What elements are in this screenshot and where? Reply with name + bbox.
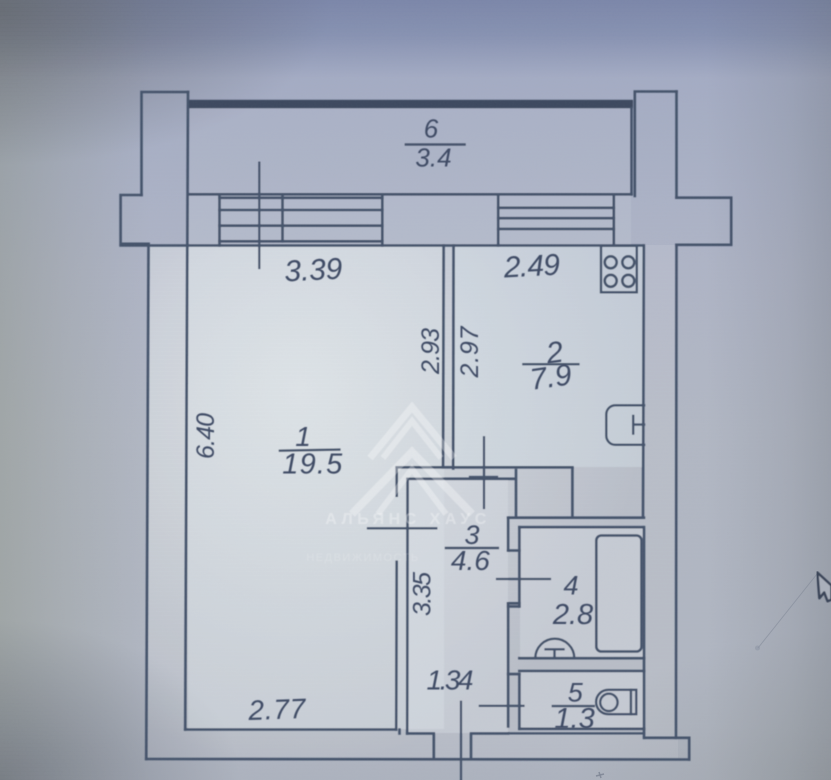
- svg-text:1: 1: [295, 421, 311, 452]
- svg-text:19.5: 19.5: [282, 449, 343, 481]
- svg-text:АЛЬЯНС ХАУС: АЛЬЯНС ХАУС: [325, 511, 491, 528]
- svg-text:2.8: 2.8: [552, 599, 593, 631]
- svg-text:2.97: 2.97: [456, 325, 484, 378]
- svg-text:1.34: 1.34: [427, 665, 474, 696]
- svg-text:7.9: 7.9: [528, 358, 574, 397]
- svg-text:4: 4: [563, 571, 578, 601]
- svg-text:4.6: 4.6: [451, 545, 490, 576]
- svg-text:6: 6: [424, 114, 439, 144]
- svg-text:6.40: 6.40: [192, 413, 220, 459]
- svg-text:2.93: 2.93: [417, 328, 445, 375]
- svg-text:2.77: 2.77: [247, 693, 307, 726]
- svg-text:3.35: 3.35: [409, 572, 437, 616]
- svg-text:2.49: 2.49: [502, 249, 561, 285]
- svg-text:1.3: 1.3: [554, 703, 594, 735]
- svg-text:3.4: 3.4: [415, 143, 451, 173]
- svg-text:3.39: 3.39: [284, 253, 344, 289]
- svg-text:НЕДВИЖИМОСТЬ: НЕДВИЖИМОСТЬ: [306, 552, 419, 564]
